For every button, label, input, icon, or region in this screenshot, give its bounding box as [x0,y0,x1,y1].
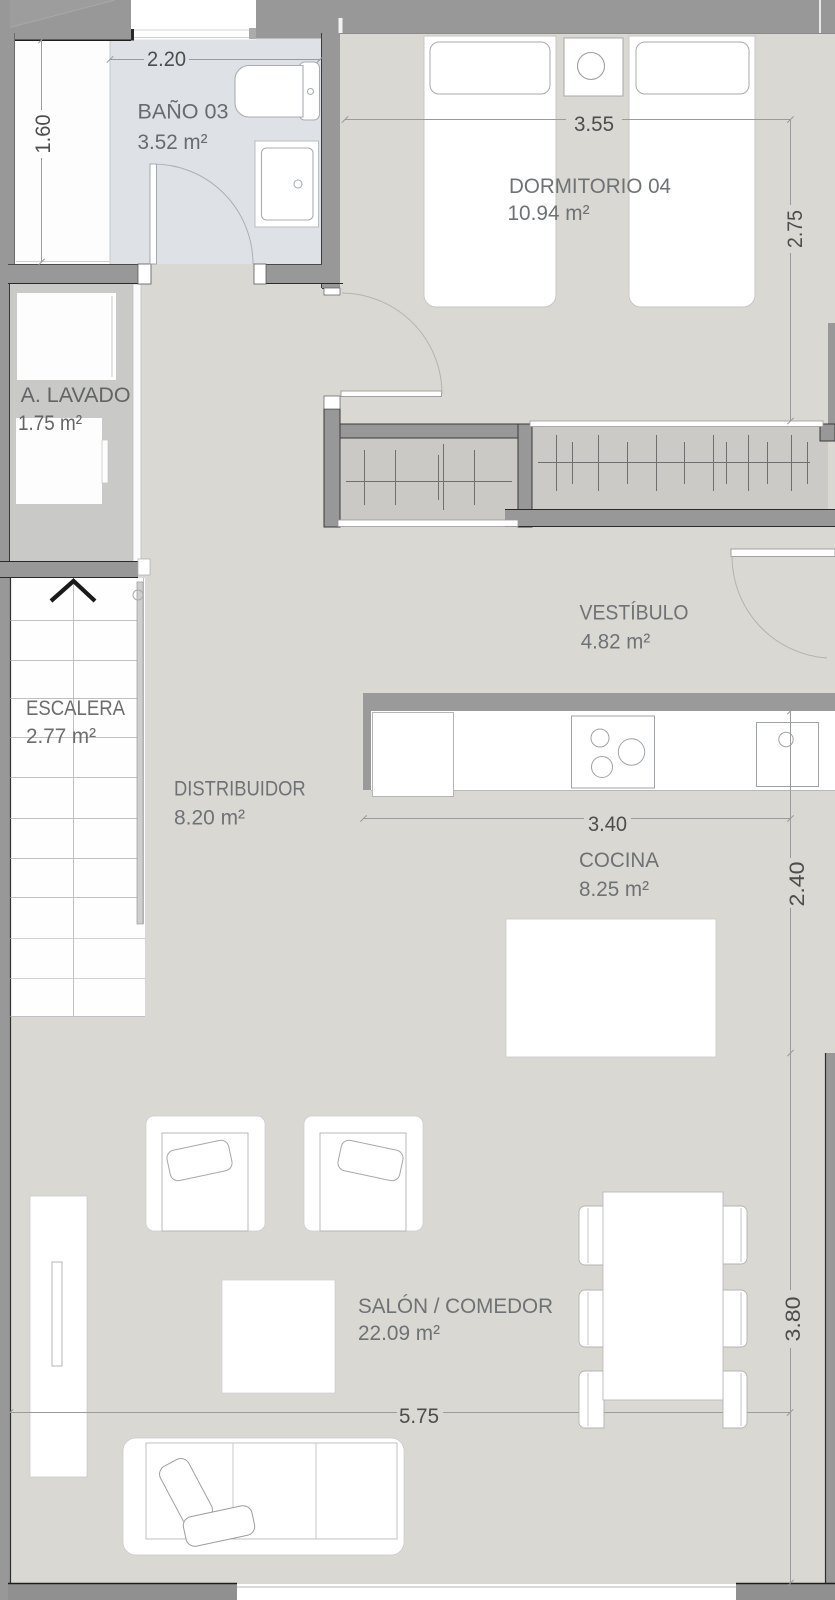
svg-text:2.20: 2.20 [147,48,186,71]
svg-text:COCINA: COCINA [579,849,659,872]
svg-text:1.75 m²: 1.75 m² [18,412,82,435]
svg-text:A. LAVADO: A. LAVADO [21,384,131,407]
svg-text:2.75: 2.75 [784,210,807,248]
svg-text:5.75: 5.75 [399,1405,439,1428]
svg-text:SALÓN / COMEDOR: SALÓN / COMEDOR [358,1295,553,1318]
svg-text:8.20 m²: 8.20 m² [174,806,245,829]
svg-text:ESCALERA: ESCALERA [26,697,125,720]
svg-text:10.94 m²: 10.94 m² [508,202,590,225]
svg-text:3.40: 3.40 [588,813,627,836]
svg-text:3.80: 3.80 [782,1297,805,1342]
svg-text:4.82 m²: 4.82 m² [581,630,651,653]
svg-text:VESTÍBULO: VESTÍBULO [580,602,689,625]
svg-text:DISTRIBUIDOR: DISTRIBUIDOR [174,777,306,800]
svg-text:2.77 m²: 2.77 m² [26,725,96,748]
svg-text:3.52 m²: 3.52 m² [138,131,208,154]
svg-text:DORMITORIO 04: DORMITORIO 04 [509,175,671,198]
svg-text:8.25 m²: 8.25 m² [579,878,649,901]
svg-text:1.60: 1.60 [32,115,55,154]
svg-text:22.09 m²: 22.09 m² [358,1322,440,1345]
svg-text:BAÑO 03: BAÑO 03 [138,100,229,124]
svg-text:2.40: 2.40 [786,862,809,907]
svg-text:3.55: 3.55 [574,113,614,136]
